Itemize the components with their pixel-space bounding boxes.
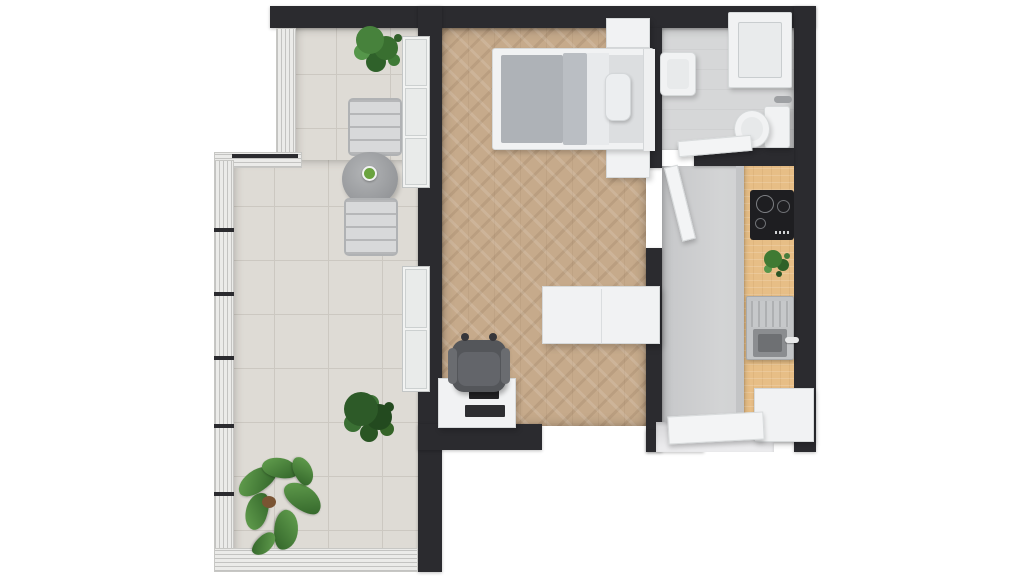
bed-pillow	[605, 73, 631, 121]
armchair-knob	[489, 333, 497, 341]
railing-post	[214, 424, 234, 428]
nightstand-bottom	[606, 148, 650, 178]
cooktop-burner	[777, 200, 790, 213]
shower-tray	[728, 12, 792, 88]
shower-basin	[738, 22, 782, 78]
railing-post	[214, 492, 234, 496]
window-pane	[405, 39, 427, 86]
balcony-railing-bottom	[214, 548, 418, 572]
balcony-plant-top	[356, 26, 384, 54]
window-pane	[405, 138, 427, 185]
washbasin	[660, 52, 696, 96]
bed-duvet-fold	[563, 53, 587, 145]
cooktop-burner	[756, 195, 774, 213]
wall-handle	[774, 96, 792, 103]
entry-door	[667, 412, 764, 445]
bed-duvet	[501, 55, 563, 143]
window-pane	[405, 88, 427, 135]
window-pane	[405, 269, 427, 328]
railing-post	[214, 356, 234, 360]
wall-right	[794, 6, 816, 452]
sink-faucet	[785, 337, 799, 343]
window-pane	[405, 330, 427, 389]
armchair-seat	[458, 352, 500, 386]
table-plant	[362, 166, 377, 181]
balcony-chair-top	[348, 98, 402, 156]
sink-basin	[753, 329, 787, 357]
balcony-shrub	[344, 392, 378, 426]
kitchen-plant	[764, 250, 782, 268]
wardrobe	[542, 286, 660, 344]
armchair-armrest-right	[501, 348, 510, 384]
nightstand-top	[606, 18, 650, 48]
balcony-chair-bottom	[344, 198, 398, 256]
cooktop	[750, 190, 794, 240]
sink-basin-inner	[758, 334, 782, 352]
armchair-armrest-left	[448, 348, 457, 384]
washbasin-bowl	[667, 59, 689, 89]
sink-drainer	[751, 301, 789, 327]
kitchen-sink	[746, 296, 794, 360]
tv-stand-drawer	[465, 405, 505, 417]
railing-cap	[232, 154, 298, 158]
cooktop-controls	[775, 231, 789, 234]
railing-post	[214, 228, 234, 232]
railing-post	[214, 292, 234, 296]
floor-plan-render	[0, 0, 1024, 576]
bed-headboard	[643, 49, 655, 151]
plant-pot	[262, 496, 276, 508]
window-upper	[402, 36, 430, 188]
wardrobe-seam	[601, 289, 602, 343]
armchair-knob	[461, 333, 469, 341]
window-lower	[402, 266, 430, 392]
balcony-railing-upper-left	[276, 28, 296, 162]
bed	[492, 48, 654, 150]
cooktop-burner	[755, 218, 766, 229]
